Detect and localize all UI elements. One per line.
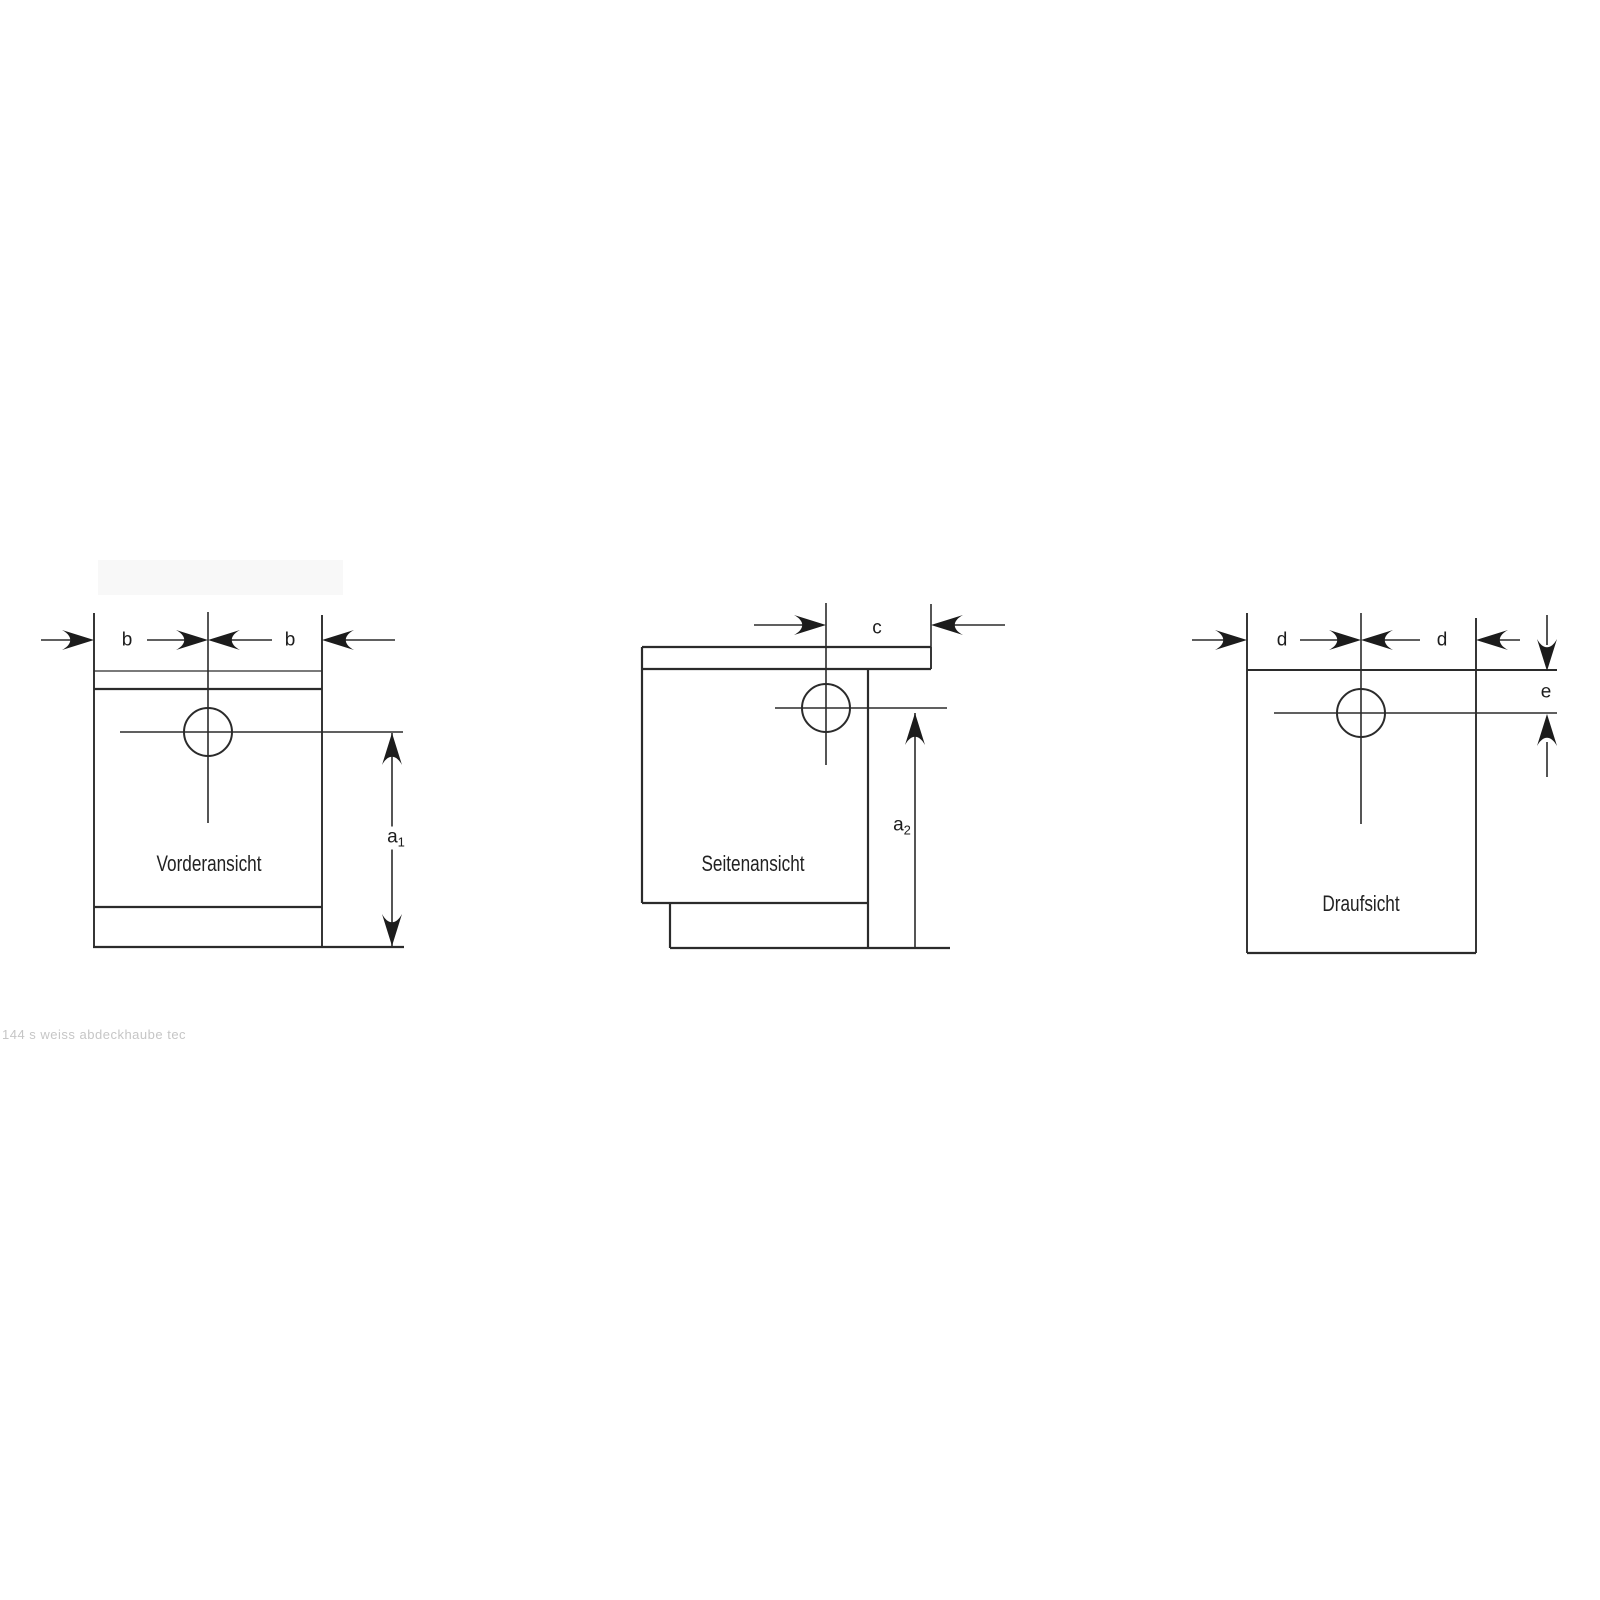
front-view-title: Vorderansicht xyxy=(157,853,262,875)
side-view-linework xyxy=(642,603,1005,948)
top-arrowheads xyxy=(1215,630,1557,746)
dim-label-b-right: b xyxy=(283,630,298,651)
dim-label-e: e xyxy=(1539,682,1554,703)
dim-label-d-right: d xyxy=(1435,630,1450,651)
dim-label-a1-subscript: 1 xyxy=(398,835,405,850)
dim-label-a2-subscript: 2 xyxy=(904,823,911,838)
watermark-filename-text: 144 s weiss abdeckhaube tec xyxy=(2,1027,186,1042)
top-view-title: Draufsicht xyxy=(1322,893,1399,915)
dim-label-a2: a2 xyxy=(891,815,913,838)
front-view-linework xyxy=(41,612,404,947)
drawing-linework xyxy=(0,0,1600,1600)
front-arrowheads xyxy=(62,630,402,946)
dim-label-a1: a1 xyxy=(385,827,407,850)
arrowhead-up-icon xyxy=(1537,714,1557,746)
dim-label-a2-base: a xyxy=(893,815,904,836)
dim-label-a1-base: a xyxy=(387,827,398,848)
dim-label-c: c xyxy=(870,618,884,639)
technical-drawing-canvas: b b a1 Vorderansicht c a2 Seitenansicht … xyxy=(0,0,1600,1600)
dim-label-d-left: d xyxy=(1275,630,1290,651)
dim-label-b-left: b xyxy=(120,630,135,651)
side-view-title: Seitenansicht xyxy=(701,853,804,875)
